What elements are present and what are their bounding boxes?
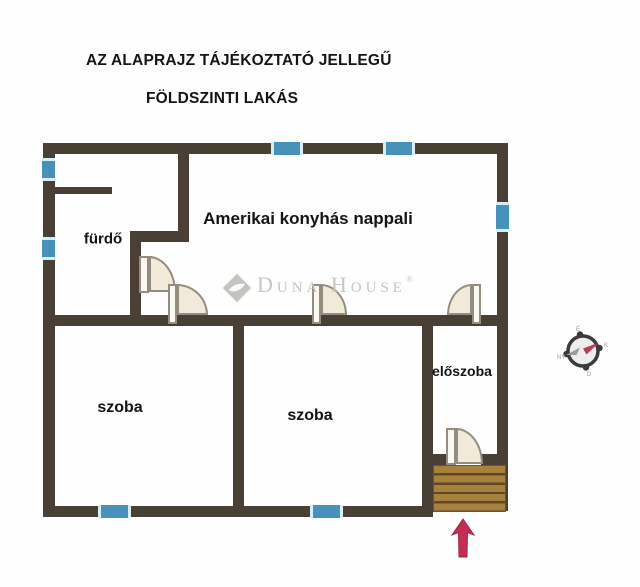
wall-bathroom-upper [178,154,189,242]
window-left-1 [42,158,55,181]
page-title: AZ ALAPRAJZ TÁJÉKOZTATÓ JELLEGŰ [86,52,392,70]
wall-hall-bottom-left [433,454,447,465]
page-subtitle: FÖLDSZINTI LAKÁS [146,90,298,108]
svg-text:É: É [576,326,580,333]
room-label-room2: szoba [287,407,332,425]
door-arc-hall [447,284,472,315]
watermark-brand: Duna House® [257,272,413,298]
door-leaf-entrance [446,428,456,465]
wall-rooms-divider [233,326,244,506]
room-label-room1: szoba [97,399,142,417]
room-label-living: Amerikai konyhás nappali [203,209,413,229]
wall-hall-left [422,315,433,512]
wall-hall-bottom-right [481,454,508,465]
window-left-2 [42,237,55,260]
door-leaf-hall [472,284,481,324]
door-leaf-room1 [168,284,177,324]
registered-mark: ® [406,274,413,284]
window-bottom-1 [98,505,131,518]
svg-text:NY: NY [557,355,565,361]
wall-bathroom-stub [55,187,112,194]
door-arc-room1 [177,284,208,315]
window-right-1 [496,202,509,232]
entrance-stairs [433,465,506,512]
door-leaf-bathroom [139,256,149,293]
dunahouse-diamond-logo-icon [219,270,255,306]
window-top-1 [271,142,303,155]
floor-plan-page: AZ ALAPRAJZ TÁJÉKOZTATÓ JELLEGŰ FÖLDSZIN… [0,0,640,587]
room-label-hall: előszoba [432,363,492,379]
svg-text:D: D [587,372,592,378]
compass-icon: É K D NY [559,327,609,377]
svg-text:K: K [604,343,608,349]
wall-bathroom-jog [130,231,189,242]
room-label-bathroom: fürdő [84,231,122,248]
wall-outer-left [43,143,55,517]
window-bottom-2 [310,505,343,518]
entrance-arrow-icon [451,519,475,561]
watermark-brand-text: Duna House [257,272,406,297]
door-arc-entrance [456,428,483,464]
window-top-2 [383,142,415,155]
